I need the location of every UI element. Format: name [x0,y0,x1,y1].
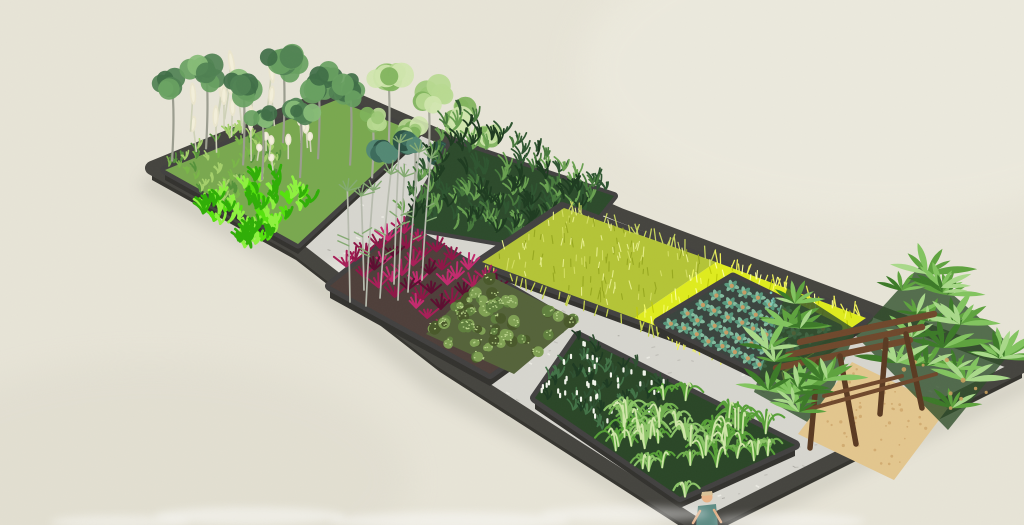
garden-render-canvas [0,0,1024,525]
garden-3d-render [0,0,1024,525]
paper-grain [0,0,1024,525]
